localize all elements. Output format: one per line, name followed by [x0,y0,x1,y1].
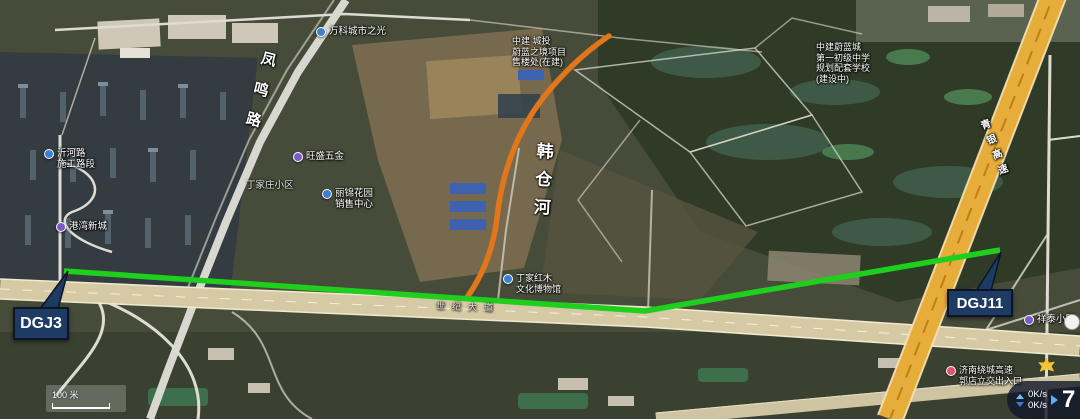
poi-logo-icon [1064,314,1080,330]
poi-marker-icon [946,366,956,376]
scale-bar: 100 米 [52,388,110,409]
poi-museum[interactable]: 丁家红木 文化博物馆 [503,273,561,294]
location-arrow-icon [1051,395,1058,405]
poi-marker-icon [56,222,66,232]
poi-school[interactable]: 中建蔚蓝城 第一初级中学 规划配套学校 (建设中) [816,42,870,84]
poi-marker-icon [322,189,332,199]
poi-dingjia: 丁家庄小区 [246,180,294,191]
poi-vanke[interactable]: 万科城市之光 [316,26,386,37]
poi-marker-icon [1024,315,1034,325]
scale-label: 100 米 [52,390,79,400]
upload-speed: 0K/s [1028,389,1047,400]
scale-rule [52,403,110,409]
poi-sales[interactable]: 丽锦花园 销售中心 [322,188,373,210]
download-speed: 0K/s [1028,400,1047,411]
poi-highway-exit[interactable]: 济南绕城高速 郭店立交出入口 [946,365,1022,386]
poi-marker-icon [503,274,513,284]
poi-wangsheng[interactable]: 旺盛五金 [293,151,344,162]
poi-marker-icon [293,152,303,162]
satellite-map[interactable]: 凤鸣路 韩仓河 青银高速 世纪大道 万科城市之光 中建 城投 蔚蓝之境项目 售楼… [0,0,1080,419]
poi-construction[interactable]: 沂河路 施工路段 [44,148,95,170]
dgj11-callout: DGJ11 [947,289,1013,317]
poi-gangwan[interactable]: 港湾新城 [56,221,107,232]
poi-marker-icon [316,27,326,37]
poi-marker-icon [44,149,54,159]
poi-zhongjian[interactable]: 中建 城投 蔚蓝之境项目 售楼处(在建) [512,36,566,68]
dgj3-callout: DGJ3 [13,307,69,340]
avenue-name-label: 世纪大道 [436,301,500,314]
updown-arrows-icon [1016,394,1024,407]
hancang-river-label: 韩仓河 [534,142,549,226]
corner-digit: 7 [1062,388,1075,412]
net-speed-widget[interactable]: 0K/s 0K/s 7 [1007,381,1080,419]
